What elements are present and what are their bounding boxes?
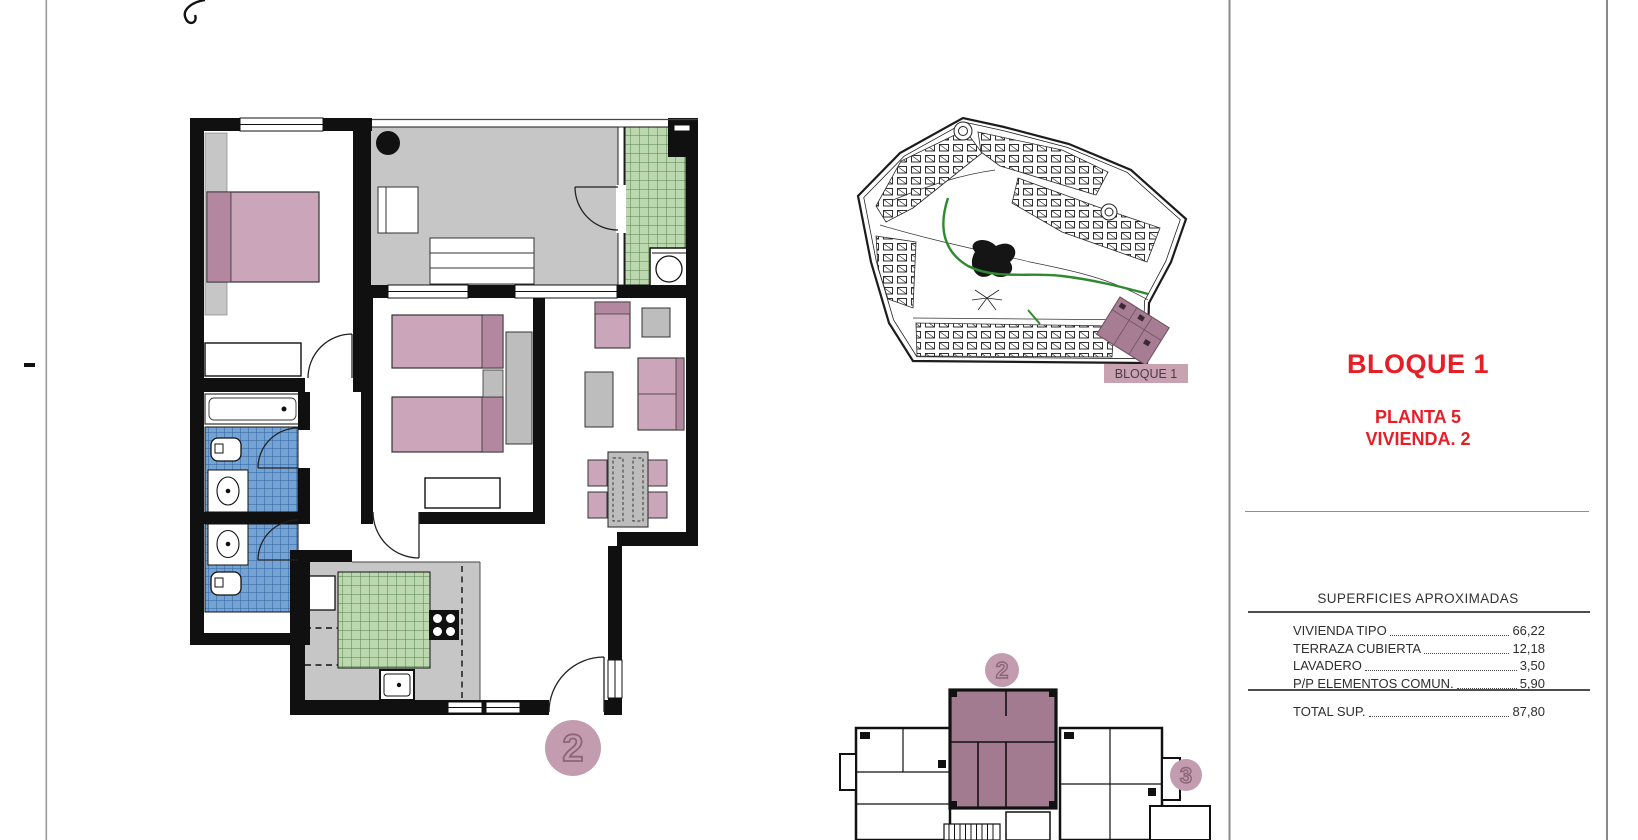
- surface-row: VIVIENDA TIPO 66,22: [1293, 621, 1545, 638]
- surface-row: LAVADERO 3,50: [1293, 656, 1545, 673]
- surface-row: P/P ELEMENTOS COMUN. 5,90: [1293, 673, 1545, 690]
- divider-line-total: [1248, 689, 1590, 691]
- dash-mark: [24, 363, 35, 367]
- dining-chair: [588, 460, 607, 486]
- dining-chair: [588, 492, 607, 518]
- park-trees: [972, 240, 1015, 277]
- surfaces-header: SUPERFICIES APROXIMADAS: [1229, 591, 1607, 606]
- total-value: 87,80: [1512, 704, 1545, 719]
- terrace-chair: [378, 187, 418, 233]
- laundry-room: [650, 248, 688, 286]
- vivienda-label: VIVIENDA. 2: [1229, 429, 1607, 450]
- surface-value: 66,22: [1512, 623, 1545, 638]
- total-label: TOTAL SUP.: [1293, 704, 1366, 719]
- dresser: [205, 343, 301, 376]
- planta-label: PLANTA 5: [1229, 407, 1607, 428]
- chest: [425, 478, 500, 508]
- plan-sheet: { "right_panel": { "title": "BLOQUE 1", …: [0, 0, 1638, 840]
- bedroom-2: [392, 315, 532, 508]
- surface-label: LAVADERO: [1293, 658, 1362, 673]
- divider-line-top: [1245, 511, 1589, 512]
- dining-table: [608, 452, 648, 527]
- dotted-leader: [1369, 716, 1510, 717]
- dotted-leader: [1424, 653, 1509, 654]
- bloque-label-text: BLOQUE 1: [1115, 367, 1178, 381]
- block-title: BLOQUE 1: [1229, 349, 1607, 380]
- key-plan-highlight-unit: [950, 690, 1056, 808]
- unit-number: 2: [996, 657, 1009, 683]
- surface-value: 12,18: [1512, 641, 1545, 656]
- bedroom-1: [205, 133, 319, 376]
- bloque-label: BLOQUE 1: [1104, 364, 1188, 383]
- key-plan-unit-2-badge: 2: [985, 653, 1019, 687]
- divider-line-header: [1248, 611, 1590, 613]
- coffee-table: [585, 372, 613, 427]
- dotted-leader: [1390, 635, 1510, 636]
- nightstand: [483, 370, 503, 397]
- unit-number: 2: [562, 728, 583, 770]
- wardrobe: [506, 332, 532, 444]
- info-panel: BLOQUE 1 PLANTA 5 VIVIENDA. 2 SUPERFICIE…: [1229, 0, 1607, 840]
- dining-chair: [648, 460, 667, 486]
- surface-label: TERRAZA CUBIERTA: [1293, 641, 1421, 656]
- fridge: [308, 576, 335, 610]
- living-dining-room: [585, 302, 684, 527]
- tv-unit: [642, 308, 670, 337]
- surface-label: VIVIENDA TIPO: [1293, 623, 1387, 638]
- terrace-bench: [430, 238, 534, 284]
- hob: [429, 610, 459, 640]
- dotted-leader: [1365, 670, 1517, 671]
- kitchen-floor: [338, 572, 430, 668]
- site-plan: BLOQUE 1: [858, 118, 1188, 383]
- surface-row: TERRAZA CUBIERTA 12,18: [1293, 638, 1545, 655]
- total-row: TOTAL SUP. 87,80: [1293, 702, 1545, 719]
- key-plan-unit-3-badge: 3: [1170, 759, 1202, 791]
- column: [376, 131, 400, 155]
- dining-chair: [648, 492, 667, 518]
- page-border-left: [46, 0, 48, 840]
- unit-number: 3: [1180, 763, 1192, 788]
- key-floor-plan: 2 3: [840, 653, 1210, 840]
- pen-squiggle: [185, 0, 205, 23]
- unit-2-badge: 2: [545, 720, 601, 776]
- stairwell: [944, 824, 1000, 840]
- terrace-rail: [372, 120, 698, 128]
- main-floor-plan: 2: [190, 118, 698, 776]
- surfaces-table: VIVIENDA TIPO 66,22 TERRAZA CUBIERTA 12,…: [1293, 621, 1545, 691]
- surface-value: 3,50: [1520, 658, 1545, 673]
